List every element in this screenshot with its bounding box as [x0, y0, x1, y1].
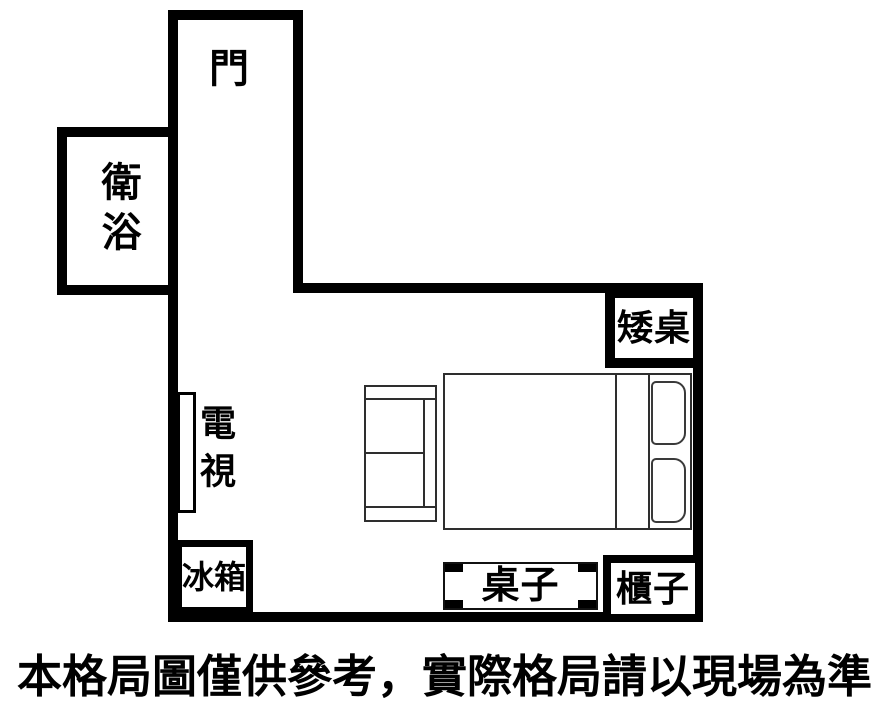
bed-pillow-divider-line	[648, 375, 650, 528]
bathroom-room: 衛浴	[57, 127, 178, 295]
bathroom-label: 衛浴	[98, 161, 138, 261]
wall-left	[168, 10, 178, 622]
pillow	[651, 458, 686, 523]
floorplan-canvas: 門 衛浴 矮桌 電視 冰箱 桌子 櫃子 本格局圖僅供參考，實際格局請以現場為準	[0, 0, 889, 709]
desk: 桌子	[443, 562, 598, 610]
wall-entry-top	[168, 10, 303, 20]
desk-leg	[578, 564, 596, 572]
tv-label: 電視	[197, 404, 233, 500]
desk-label: 桌子	[481, 567, 559, 605]
pillow	[651, 381, 686, 445]
door-label: 門	[199, 36, 259, 94]
wall-entry-right	[293, 10, 303, 293]
sofa	[364, 385, 437, 522]
desk-leg	[578, 600, 596, 608]
low-table-label: 矮桌	[617, 310, 691, 346]
fridge: 冰箱	[175, 540, 253, 614]
disclaimer-caption: 本格局圖僅供參考，實際格局請以現場為準	[0, 640, 889, 705]
desk-leg	[445, 564, 463, 572]
bed-head-divider-line	[615, 375, 617, 528]
tv-unit	[177, 392, 196, 513]
desk-leg	[445, 600, 463, 608]
cabinet: 櫃子	[603, 555, 703, 622]
sofa-cushion-divider	[366, 452, 423, 454]
cabinet-label: 櫃子	[616, 571, 690, 607]
sofa-backrest-line	[423, 398, 425, 508]
fridge-label: 冰箱	[182, 561, 246, 593]
low-table: 矮桌	[605, 288, 703, 368]
